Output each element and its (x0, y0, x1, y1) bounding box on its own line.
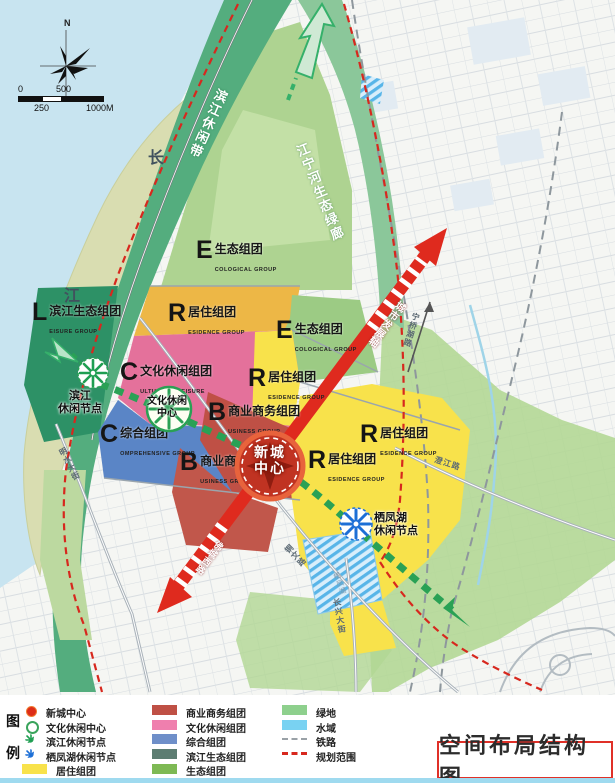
city-center-label: 新城 中心 (240, 444, 300, 476)
zone-name: 居住组团 (188, 305, 236, 319)
zone-name: 商业商务组团 (228, 404, 300, 418)
legend-item-label: 规划范围 (316, 749, 356, 764)
legend-binjiang-node-icon (25, 734, 34, 743)
legend-residence-swatch (22, 764, 47, 774)
zone-name: 滨江生态组团 (49, 304, 121, 318)
qifeng-node-label: 栖凤湖 休闲节点 (374, 512, 418, 537)
culture-center-line1: 文化休闲 (147, 396, 187, 407)
zone-letter: L (32, 302, 47, 323)
legend-business-swatch (152, 705, 177, 715)
map-canvas: N 0 500 250 1000M (0, 0, 615, 695)
zone-sub: ESIDENCE GROUP (380, 451, 437, 457)
zone-label-eco-top: E 生态组团 COLOGICAL GROUP (196, 240, 277, 276)
legend-city-center-icon (26, 706, 37, 717)
map-title-box: 空间布局结构图 (437, 741, 613, 779)
culture-center-label: 文化休闲 中心 (147, 396, 187, 419)
legend-item-label: 文化休闲组团 (186, 720, 246, 735)
legend-item-label: 综合组团 (186, 734, 226, 749)
zone-name: 生态组团 (295, 322, 343, 336)
legend-railway-icon (282, 738, 307, 740)
qifeng-node-icon (338, 506, 374, 542)
scale-bar: 0 500 250 1000M (14, 84, 124, 114)
river-name-char-1: 长 (148, 144, 164, 168)
binjiang-node-icon (76, 356, 110, 390)
zone-letter: R (168, 303, 186, 324)
binjiang-node-line1: 滨江 (69, 390, 91, 402)
legend-green-swatch (282, 705, 307, 715)
zone-sub: COLOGICAL GROUP (295, 347, 357, 353)
legend-binjiang-eco-swatch (152, 749, 177, 759)
zone-letter: R (360, 424, 378, 445)
city-center-line2: 中心 (254, 460, 286, 476)
legend-heading-char-1: 图 (6, 711, 20, 731)
zone-sub: ESIDENCE GROUP (268, 395, 325, 401)
legend-item-label: 生态组团 (186, 763, 226, 778)
zone-letter: C (100, 424, 118, 445)
zone-label-binjiang-eco: L 滨江生态组团 EISURE GROUP (32, 302, 121, 338)
scale-500: 500 (56, 84, 71, 94)
bottom-blue-strip (0, 778, 615, 783)
zone-sub: ESIDENCE GROUP (188, 330, 245, 336)
scale-0: 0 (18, 84, 23, 94)
zone-letter: R (308, 450, 326, 471)
legend-comprehensive-swatch (152, 734, 177, 744)
zone-letter: B (180, 452, 198, 473)
legend-item-label: 商业商务组团 (186, 705, 246, 720)
legend-water-swatch (282, 720, 307, 730)
zone-label-residence-right: R 居住组团 ESIDENCE GROUP (360, 424, 437, 460)
legend-item-label: 栖凤湖休闲节点 (46, 749, 116, 764)
qifeng-node-line1: 栖凤湖 (374, 512, 407, 524)
legend-item-label: 新城中心 (46, 705, 86, 720)
legend-item-label: 水域 (316, 720, 336, 735)
legend-item-label: 滨江休闲节点 (46, 734, 106, 749)
scale-seg-2 (42, 96, 62, 102)
legend-item-label: 文化休闲中心 (46, 720, 106, 735)
city-center-line1: 新城 (254, 444, 286, 460)
binjiang-node-line2: 休闲节点 (58, 403, 102, 415)
legend-culture-center-icon (26, 721, 39, 734)
qifeng-node-line2: 休闲节点 (374, 525, 418, 537)
planning-map-page: N 0 500 250 1000M (0, 0, 615, 783)
legend-culture-swatch (152, 720, 177, 730)
legend-heading-char-2: 例 (6, 743, 20, 763)
map-title: 空间布局结构图 (439, 728, 611, 783)
zone-label-residence-amber: R 居住组团 ESIDENCE GROUP (168, 303, 245, 339)
zone-letter: R (248, 368, 266, 389)
zone-sub: EISURE GROUP (49, 329, 97, 335)
zone-letter: C (120, 362, 138, 383)
legend-item-label: 居住组团 (56, 763, 96, 778)
zone-name: 生态组团 (215, 242, 263, 256)
zone-name: 居住组团 (268, 370, 316, 384)
legend-boundary-icon (282, 752, 307, 755)
legend-qifeng-node-icon (25, 749, 34, 758)
zone-letter: E (276, 320, 293, 341)
legend-item-label: 滨江生态组团 (186, 749, 246, 764)
zone-name: 居住组团 (380, 426, 428, 440)
zone-sub: ESIDENCE GROUP (328, 477, 385, 483)
zone-label-eco-right: E 生态组团 COLOGICAL GROUP (276, 320, 357, 356)
zone-letter: B (208, 402, 226, 423)
legend-item-label: 铁路 (316, 734, 336, 749)
culture-center-line2: 中心 (157, 408, 177, 419)
scale-250: 250 (34, 103, 49, 113)
legend-eco-swatch (152, 764, 177, 774)
legend-item-label: 绿地 (316, 705, 336, 720)
zone-label-residence-mid: R 居住组团 ESIDENCE GROUP (248, 368, 325, 404)
zone-sub: COLOGICAL GROUP (215, 267, 277, 273)
zone-letter: E (196, 240, 213, 261)
scale-1000: 1000M (86, 103, 114, 113)
binjiang-node-label: 滨江 休闲节点 (58, 390, 102, 415)
zone-name: 文化休闲组团 (140, 364, 212, 378)
scale-seg-3 (62, 96, 104, 102)
